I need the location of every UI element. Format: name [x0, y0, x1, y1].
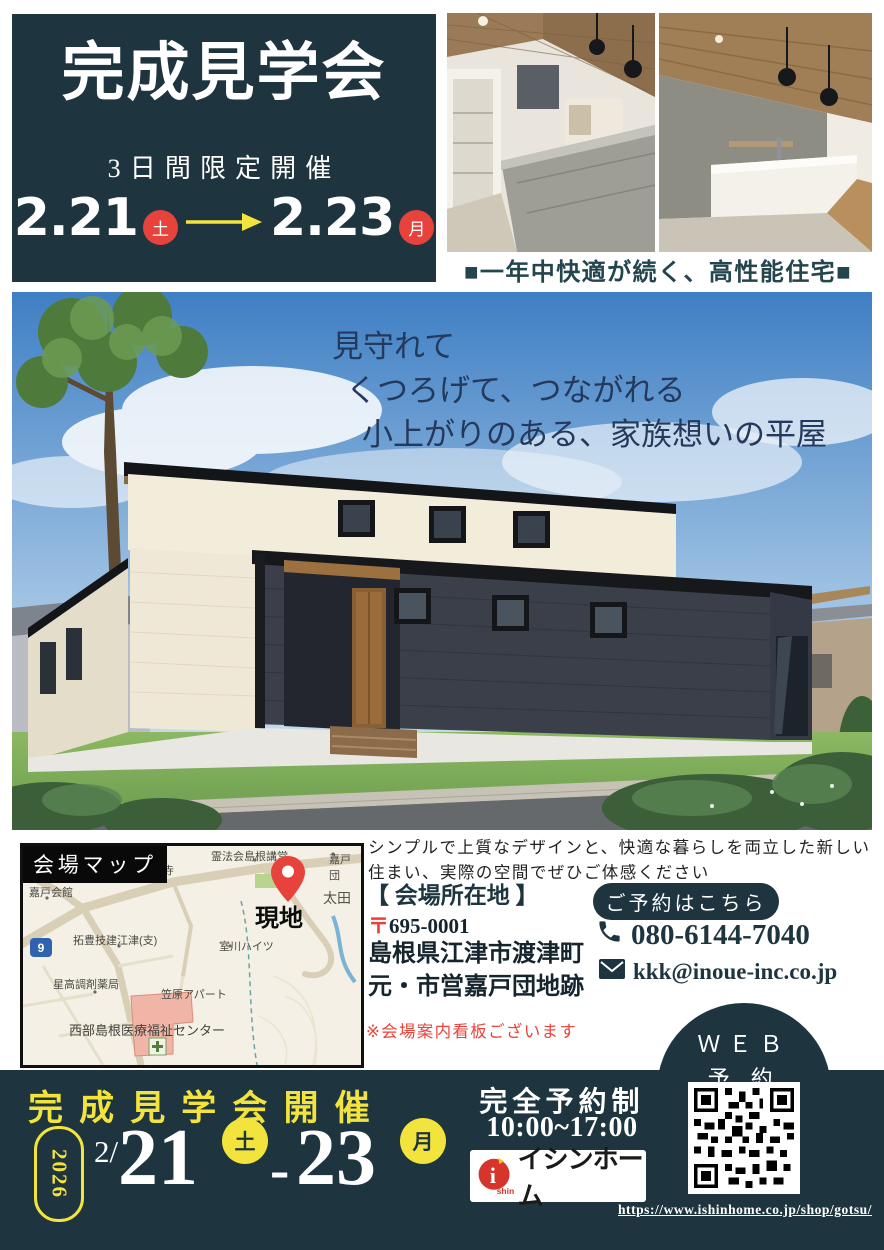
map-place-label: 嘉戸団 [329, 851, 361, 883]
footer-weekday-end: 月 [400, 1118, 446, 1164]
event-title: 完成見学会 [12, 42, 436, 105]
event-subtitle: 3日間限定開催 [12, 148, 436, 185]
headline-line-3: 小上がりのある、家族想いの平屋 [332, 413, 827, 457]
phone-contact[interactable]: 080-6144-7040 [596, 918, 810, 953]
lead-line-1: シンプルで上質なデザインと、快適な暮らしを両立した新しい [368, 836, 870, 861]
date-end: 2.23 [270, 192, 394, 244]
qr-code[interactable] [688, 1082, 800, 1194]
map-place-label: 拓豊技建江津(支) [73, 932, 157, 948]
venue-map: 会場マップ 長徳寺 霊法会島根講堂 嘉戸団 嘉戸会館 太田 拓豊技建江津(支) … [20, 843, 364, 1068]
reserve-badge[interactable]: ご予約はこちら [593, 883, 779, 920]
footer-day-start: 21 [118, 1118, 198, 1198]
brand-logo: i shin イシンホーム [470, 1150, 646, 1202]
headline-line-2: くつろげて、つながれる [332, 369, 827, 413]
footer-weekday-start: 土 [222, 1118, 268, 1164]
postal-code: 〒695-0001 [368, 910, 470, 940]
email-contact[interactable]: kkk@inoue-inc.co.jp [599, 959, 837, 985]
venue-heading: 【 会場所在地 】 [366, 876, 539, 910]
address-line-1: 島根県江津市渡津町 [368, 938, 584, 971]
map-place-label: 太田 [323, 888, 351, 908]
event-dates: 2.21 土 2.23 月 [12, 192, 436, 244]
year-badge: 2026 [34, 1126, 84, 1222]
footer-day-separator: - [270, 1136, 289, 1203]
arrow-right-icon [186, 211, 262, 238]
year-text: 2026 [47, 1149, 72, 1199]
photos-caption: ■一年中快適が続く、高性能住宅■ [443, 252, 873, 287]
map-place-label: 嘉戸会館 [29, 884, 73, 900]
headline-line-1: 見守れて [332, 325, 827, 369]
footer-month: 2/ [94, 1134, 118, 1170]
phone-icon [596, 918, 623, 953]
render-headline: 見守れて くつろげて、つながれる 小上がりのある、家族想いの平屋 [332, 325, 827, 457]
venue-address: 島根県江津市渡津町 元・市営嘉戸団地跡 [368, 938, 584, 1004]
map-pin-icon [271, 856, 305, 902]
svg-text:shin: shin [497, 1186, 515, 1196]
hero-panel: 完成見学会 3日間限定開催 2.21 土 2.23 月 [12, 14, 436, 282]
postal-mark: 〒 [368, 914, 389, 938]
kitchen-photo-right [659, 13, 872, 252]
svg-text:i: i [490, 1163, 496, 1188]
signboard-note: ※会場案内看板ございます [366, 1018, 577, 1042]
mail-icon [599, 959, 625, 985]
weekday-start-badge: 土 [143, 210, 178, 245]
postal-number: 695-0001 [389, 914, 470, 938]
kitchen-photo-left [447, 13, 655, 252]
weekday-end-badge: 月 [399, 210, 434, 245]
website-url[interactable]: https://www.ishinhome.co.jp/shop/gotsu/ [420, 1202, 872, 1218]
phone-number: 080-6144-7040 [631, 919, 810, 952]
map-place-label: 西部島根医療福祉センター [69, 1020, 225, 1039]
map-place-label: 室川ハイツ [219, 938, 274, 954]
route-9-shield: 9 [30, 938, 52, 957]
map-place-label: 笠原アパート [161, 986, 227, 1002]
map-place-label: 星高調剤薬局 [53, 976, 119, 992]
address-line-2: 元・市営嘉戸団地跡 [368, 971, 584, 1004]
flyer-page: 完成見学会 3日間限定開催 2.21 土 2.23 月 [0, 0, 884, 1250]
ishin-logo-mark: i shin [476, 1152, 516, 1200]
web-reserve-line-1: ＷＥＢ [657, 1025, 831, 1059]
map-badge: 会場マップ [23, 846, 167, 883]
footer-day-end: 23 [296, 1118, 376, 1198]
site-label: 現地 [255, 898, 303, 933]
email-address: kkk@inoue-inc.co.jp [633, 959, 837, 985]
date-start: 2.21 [14, 192, 138, 244]
